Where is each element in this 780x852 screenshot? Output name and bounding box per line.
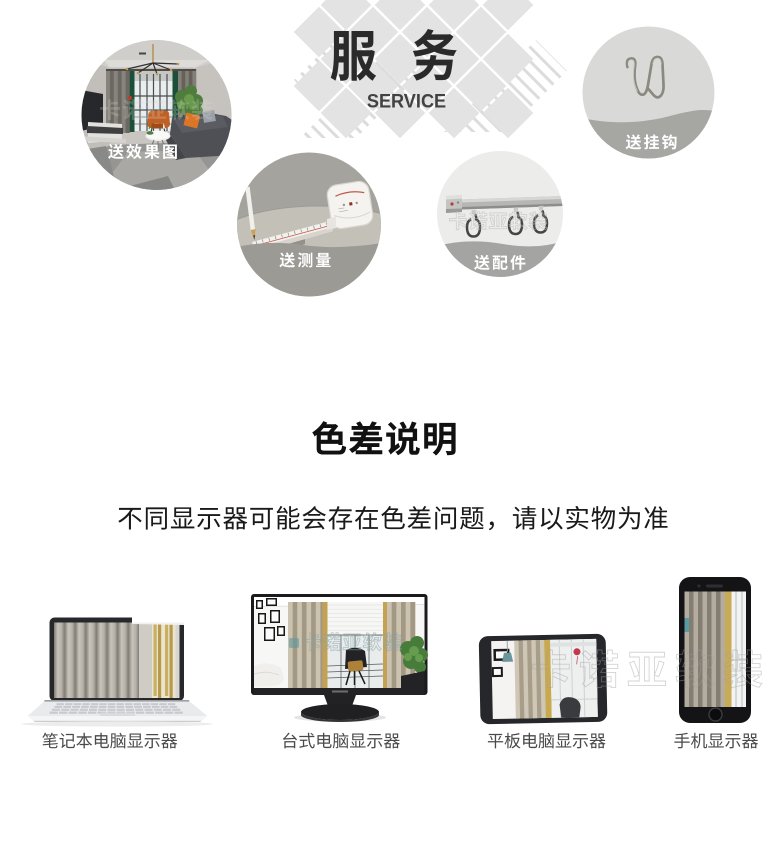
svg-text:SERVICE: SERVICE [367, 91, 446, 112]
